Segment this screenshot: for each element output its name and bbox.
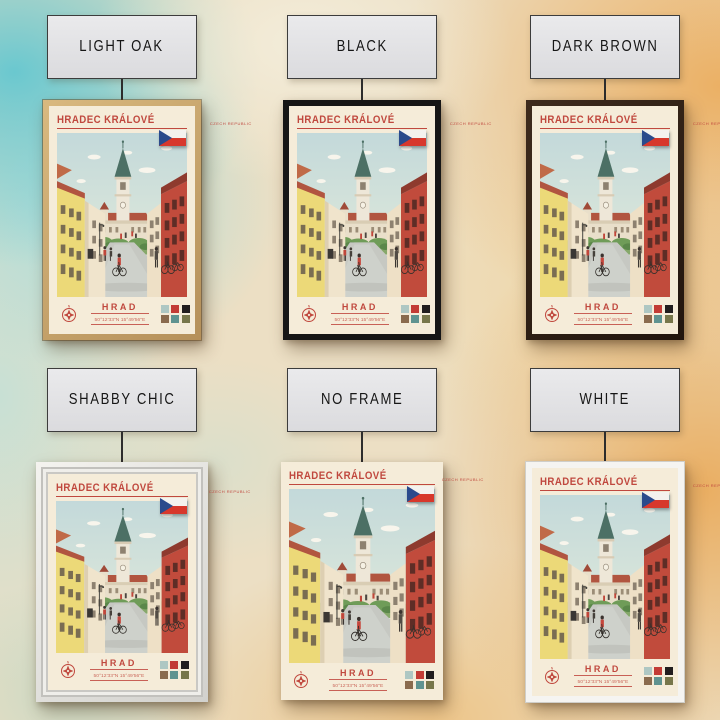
poster-footer: N HRAD 50°12'33"N 15°49'56"E — [540, 300, 670, 328]
palette-swatch — [426, 671, 434, 679]
coordinates: 50°12'33"N 15°49'56"E — [94, 672, 145, 678]
palette-swatch — [644, 677, 652, 685]
poster-footer: N HRAD 50°12'33"N 15°49'56"E — [56, 656, 188, 684]
hanging-line — [361, 432, 363, 462]
poster-artwork — [297, 133, 427, 297]
caption-rule-bottom — [90, 680, 148, 681]
color-palette — [405, 671, 434, 690]
poster-artwork — [540, 133, 670, 297]
caption-rule-bottom — [91, 324, 149, 325]
poster-header: HRADEC KRÁLOVÉ CZECH REPUBLIC — [297, 114, 427, 129]
compass-icon: N — [291, 670, 311, 690]
palette-swatch — [181, 671, 189, 679]
poster-light-oak[interactable]: HRADEC KRÁLOVÉ CZECH REPUBLIC — [43, 100, 201, 340]
frame-option-cell: DARK BROWN HRADEC KRÁLOVÉ CZECH REPUBLIC — [505, 15, 705, 340]
svg-text:N: N — [67, 661, 70, 665]
color-palette — [644, 667, 673, 686]
poster-country: CZECH REPUBLIC — [450, 122, 492, 127]
caption-rule-top — [574, 675, 632, 676]
poster-country: CZECH REPUBLIC — [210, 122, 252, 127]
poster-caption: HRAD 50°12'33"N 15°49'56"E — [79, 302, 161, 327]
poster-dark-brown[interactable]: HRADEC KRÁLOVÉ CZECH REPUBLIC — [526, 100, 684, 340]
poster-title: HRADEC KRÁLOVÉ — [289, 470, 387, 482]
palette-swatch — [170, 671, 178, 679]
caption-rule-top — [331, 313, 389, 314]
poster-artwork — [57, 133, 187, 297]
caption-rule-top — [91, 313, 149, 314]
poster-artwork — [540, 495, 670, 659]
frame-option-label: BLACK — [287, 15, 437, 79]
compass-icon: N — [299, 304, 319, 324]
frame-option-label: LIGHT OAK — [47, 15, 197, 79]
poster-white[interactable]: HRADEC KRÁLOVÉ CZECH REPUBLIC — [526, 462, 684, 702]
palette-swatch — [665, 677, 673, 685]
caption-rule-top — [329, 679, 387, 680]
poster-caption: HRAD 50°12'33"N 15°49'56"E — [562, 302, 644, 327]
palette-swatch — [644, 315, 652, 323]
poster-title: HRADEC KRÁLOVÉ — [57, 114, 155, 126]
compass-icon: N — [542, 304, 562, 324]
color-palette — [160, 661, 189, 680]
landmark-name: HRAD — [585, 664, 621, 674]
caption-rule-top — [90, 669, 148, 670]
palette-swatch — [182, 305, 190, 313]
palette-swatch — [644, 667, 652, 675]
compass-icon: N — [59, 304, 79, 324]
landmark-name: HRAD — [101, 658, 137, 668]
poster-header: HRADEC KRÁLOVÉ CZECH REPUBLIC — [56, 482, 188, 497]
palette-swatch — [160, 671, 168, 679]
poster-title: HRADEC KRÁLOVÉ — [56, 482, 154, 494]
poster-caption: HRAD 50°12'33"N 15°49'56"E — [78, 658, 160, 683]
poster-header: HRADEC KRÁLOVÉ CZECH REPUBLIC — [540, 476, 670, 491]
palette-swatch — [654, 677, 662, 685]
hanging-line — [604, 432, 606, 462]
poster-country: CZECH REPUBLIC — [693, 122, 720, 127]
frame-option-cell: SHABBY CHIC HRADEC KRÁLOVÉ CZECH REPUBLI… — [22, 368, 222, 702]
svg-text:N: N — [300, 671, 303, 675]
color-palette — [644, 305, 673, 324]
palette-swatch — [405, 681, 413, 689]
hanging-line — [121, 432, 123, 462]
poster-caption: HRAD 50°12'33"N 15°49'56"E — [562, 664, 644, 689]
svg-text:N: N — [551, 667, 554, 671]
poster-artwork — [56, 501, 188, 653]
frame-option-label: NO FRAME — [287, 368, 437, 432]
frame-option-cell: BLACK HRADEC KRÁLOVÉ CZECH REPUBLIC — [262, 15, 462, 340]
svg-text:N: N — [68, 305, 71, 309]
palette-swatch — [665, 305, 673, 313]
caption-rule-bottom — [574, 324, 632, 325]
palette-swatch — [654, 305, 662, 313]
palette-swatch — [171, 315, 179, 323]
frame-option-label: SHABBY CHIC — [47, 368, 197, 432]
coordinates: 50°12'33"N 15°49'56"E — [95, 316, 146, 322]
czech-republic-flag-icon — [399, 130, 426, 146]
poster-header: HRADEC KRÁLOVÉ CZECH REPUBLIC — [289, 470, 435, 485]
landmark-name: HRAD — [102, 302, 138, 312]
frame-option-label-text: NO FRAME — [321, 391, 403, 409]
palette-swatch — [401, 315, 409, 323]
poster-paper: HRADEC KRÁLOVÉ CZECH REPUBLIC — [532, 468, 678, 696]
poster-header: HRADEC KRÁLOVÉ CZECH REPUBLIC — [540, 114, 670, 129]
palette-swatch — [171, 305, 179, 313]
poster-paper: HRADEC KRÁLOVÉ CZECH REPUBLIC — [48, 474, 196, 690]
coordinates: 50°12'33"N 15°49'56"E — [333, 682, 384, 688]
svg-text:N: N — [308, 305, 311, 309]
compass-icon: N — [58, 660, 78, 680]
poster-artwork — [289, 489, 435, 663]
poster-black[interactable]: HRADEC KRÁLOVÉ CZECH REPUBLIC — [283, 100, 441, 340]
palette-swatch — [422, 315, 430, 323]
hanging-line — [361, 79, 363, 100]
product-frame-options-board: LIGHT OAK HRADEC KRÁLOVÉ CZECH REPUBLIC — [0, 0, 720, 720]
poster-caption: HRAD 50°12'33"N 15°49'56"E — [311, 668, 405, 693]
frame-option-cell: WHITE HRADEC KRÁLOVÉ CZECH REPUBLIC — [505, 368, 705, 702]
palette-swatch — [411, 305, 419, 313]
color-palette — [401, 305, 430, 324]
caption-rule-bottom — [329, 690, 387, 691]
color-palette — [161, 305, 190, 324]
palette-swatch — [161, 315, 169, 323]
palette-swatch — [416, 671, 424, 679]
palette-swatch — [654, 667, 662, 675]
frame-option-cell: LIGHT OAK HRADEC KRÁLOVÉ CZECH REPUBLIC — [22, 15, 222, 340]
poster-paper: HRADEC KRÁLOVÉ CZECH REPUBLIC — [289, 106, 435, 334]
frame-option-label-text: LIGHT OAK — [80, 38, 165, 56]
landmark-name: HRAD — [340, 668, 376, 678]
czech-republic-flag-icon — [642, 130, 669, 146]
caption-rule-top — [574, 313, 632, 314]
czech-republic-flag-icon — [159, 130, 186, 146]
poster-paper: HRADEC KRÁLOVÉ CZECH REPUBLIC — [49, 106, 195, 334]
poster-shabby-chic[interactable]: HRADEC KRÁLOVÉ CZECH REPUBLIC — [36, 462, 208, 702]
hanging-line — [604, 79, 606, 100]
czech-republic-flag-icon — [642, 492, 669, 508]
frame-option-label-text: WHITE — [580, 391, 630, 409]
frame-option-label-text: DARK BROWN — [552, 38, 659, 56]
poster-footer: N HRAD 50°12'33"N 15°49'56"E — [289, 666, 435, 694]
palette-swatch — [411, 315, 419, 323]
poster-footer: N HRAD 50°12'33"N 15°49'56"E — [57, 300, 187, 328]
poster-header: HRADEC KRÁLOVÉ CZECH REPUBLIC — [57, 114, 187, 129]
coordinates: 50°12'33"N 15°49'56"E — [578, 316, 629, 322]
svg-text:N: N — [551, 305, 554, 309]
palette-swatch — [665, 315, 673, 323]
palette-swatch — [170, 661, 178, 669]
poster-country: CZECH REPUBLIC — [209, 490, 251, 495]
poster-title: HRADEC KRÁLOVÉ — [540, 476, 638, 488]
poster-paper: HRADEC KRÁLOVÉ CZECH REPUBLIC — [532, 106, 678, 334]
caption-rule-bottom — [574, 686, 632, 687]
palette-swatch — [161, 305, 169, 313]
landmark-name: HRAD — [585, 302, 621, 312]
compass-icon: N — [542, 666, 562, 686]
frame-option-cell: NO FRAME HRADEC KRÁLOVÉ CZECH REPUBLIC — [262, 368, 462, 700]
poster-footer: N HRAD 50°12'33"N 15°49'56"E — [297, 300, 427, 328]
poster-no-frame[interactable]: HRADEC KRÁLOVÉ CZECH REPUBLIC — [281, 462, 443, 700]
caption-rule-bottom — [331, 324, 389, 325]
frame-option-label-text: SHABBY CHIC — [69, 391, 176, 409]
palette-swatch — [160, 661, 168, 669]
palette-swatch — [405, 671, 413, 679]
hanging-line — [121, 79, 123, 100]
czech-republic-flag-icon — [407, 486, 434, 502]
palette-swatch — [416, 681, 424, 689]
poster-caption: HRAD 50°12'33"N 15°49'56"E — [319, 302, 401, 327]
palette-swatch — [422, 305, 430, 313]
poster-country: CZECH REPUBLIC — [693, 484, 720, 489]
frame-option-label: WHITE — [530, 368, 680, 432]
landmark-name: HRAD — [342, 302, 378, 312]
coordinates: 50°12'33"N 15°49'56"E — [335, 316, 386, 322]
coordinates: 50°12'33"N 15°49'56"E — [578, 678, 629, 684]
poster-footer: N HRAD 50°12'33"N 15°49'56"E — [540, 662, 670, 690]
poster-title: HRADEC KRÁLOVÉ — [540, 114, 638, 126]
poster-paper: HRADEC KRÁLOVÉ CZECH REPUBLIC — [281, 462, 443, 700]
palette-swatch — [665, 667, 673, 675]
palette-swatch — [426, 681, 434, 689]
palette-swatch — [654, 315, 662, 323]
poster-title: HRADEC KRÁLOVÉ — [297, 114, 395, 126]
palette-swatch — [401, 305, 409, 313]
czech-republic-flag-icon — [160, 498, 187, 514]
frame-option-label-text: BLACK — [336, 38, 387, 56]
poster-country: CZECH REPUBLIC — [442, 478, 484, 483]
palette-swatch — [644, 305, 652, 313]
palette-swatch — [181, 661, 189, 669]
palette-swatch — [182, 315, 190, 323]
frame-option-label: DARK BROWN — [530, 15, 680, 79]
